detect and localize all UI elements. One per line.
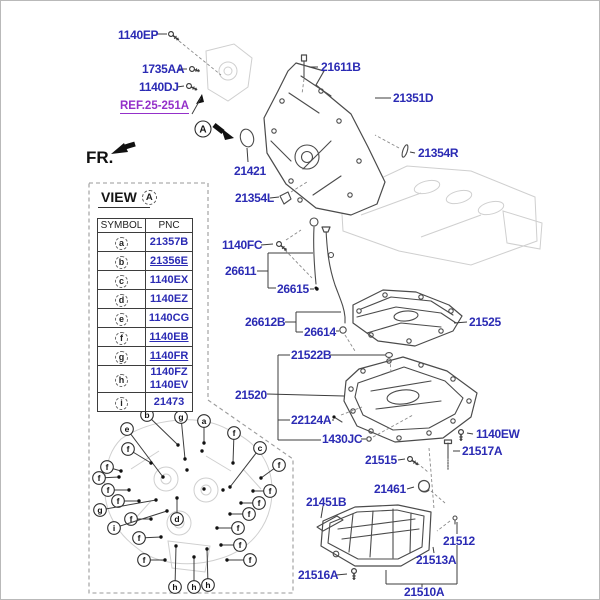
symbol-marker-letter: e (125, 424, 130, 434)
bolt-point-dot (251, 489, 254, 492)
bolt-point-dot (259, 476, 262, 479)
view-a-bottom-sketch (105, 420, 272, 564)
pnc-cell: 1140FR (146, 347, 193, 366)
stud-22124A (332, 415, 342, 422)
part-label-1140DJ[interactable]: 1140DJ (139, 80, 179, 94)
leader-line (267, 394, 344, 396)
timing-cover-21351D (264, 63, 385, 215)
symbol-marker-letter: f (98, 473, 101, 483)
bolt-point-dot (221, 488, 224, 491)
symbol-marker-letter: f (106, 462, 109, 472)
symbol-marker-letter: f (239, 540, 242, 550)
table-row: b21356E (98, 252, 193, 271)
o-ring-26614 (340, 327, 346, 333)
symbol-marker-letter: h (172, 582, 177, 592)
view-title-underline (98, 207, 150, 208)
bolt-icon (168, 31, 181, 42)
clip-26615 (315, 287, 318, 290)
symbol-marker-g: g (175, 411, 188, 461)
bolt-point-dot (149, 517, 152, 520)
diagram-canvas: A bgaeffcfffffffgfdfifffffhhh (1, 1, 600, 600)
symbol-marker-letter: a (202, 416, 207, 426)
symbol-circle-i: i (115, 397, 128, 410)
symbol-marker-f: f (133, 532, 163, 545)
part-label-21513A[interactable]: 21513A (416, 553, 456, 567)
symbol-circle-e: e (115, 313, 128, 326)
seal-21354R (401, 144, 409, 158)
bolt-point-dot (154, 498, 157, 501)
symbol-marker-letter: f (258, 498, 261, 508)
leader-line (410, 152, 415, 153)
bolt-point-dot (175, 496, 178, 499)
symbol-marker-letter: f (107, 485, 110, 495)
symbol-marker-f: f (225, 554, 256, 567)
dashed-line (286, 230, 301, 240)
fr-direction-label: FR. (86, 148, 113, 168)
gasket-21354L (280, 192, 291, 204)
bolt-point-dot (228, 512, 231, 515)
pnc-value-21356E[interactable]: 21356E (146, 255, 192, 268)
symbol-cell: h (98, 366, 146, 393)
part-label-21516A[interactable]: 21516A (298, 568, 338, 582)
part-label-21351D[interactable]: 21351D (393, 91, 433, 105)
part-label-1140EW[interactable]: 1140EW (476, 427, 520, 441)
part-label-21517A[interactable]: 21517A (462, 444, 502, 458)
symbol-marker-f: f (239, 497, 265, 510)
leader-line (192, 98, 201, 114)
bolt-point-dot (163, 558, 166, 561)
symbol-cell: g (98, 347, 146, 366)
symbol-circle-b: b (115, 256, 128, 269)
bolt-point-dot (202, 441, 205, 444)
bolt-point-dot (127, 488, 130, 491)
part-label-21510A[interactable]: 21510A (404, 585, 444, 599)
bolt-icon (352, 569, 357, 580)
part-label-21354L[interactable]: 21354L (235, 191, 274, 205)
leader-line (398, 459, 405, 460)
part-label-1140EP[interactable]: 1140EP (118, 28, 158, 42)
pnc-cell: 1140EB (146, 328, 193, 347)
bolt-21517A (445, 440, 452, 470)
ref-link[interactable]: REF.25-251A (120, 100, 189, 114)
symbol-marker-letter: f (248, 509, 251, 519)
symbol-marker-f: f (228, 508, 255, 521)
symbol-cell: i (98, 393, 146, 412)
symbol-marker-letter: f (127, 444, 130, 454)
detail-view-marker-letter: A (199, 125, 206, 136)
symbol-marker-letter: f (249, 555, 252, 565)
symbol-marker-letter: i (113, 523, 115, 533)
bolt-point-dot (137, 499, 140, 502)
bolt-point-dot (161, 475, 164, 478)
part-label-21611B[interactable]: 21611B (321, 60, 361, 74)
symbol-marker-f: f (228, 427, 241, 465)
pnc-cell: 21357B (146, 233, 193, 252)
symbol-cell: a (98, 233, 146, 252)
symbol-marker-letter: h (191, 582, 196, 592)
bolt-point-dot (192, 555, 195, 558)
pnc-value-1140CG[interactable]: 1140CG (146, 312, 192, 325)
pnc-cell: 21356E (146, 252, 193, 271)
bolt-point-dot (231, 461, 234, 464)
bolt-point-dot (239, 501, 242, 504)
symbol-marker-letter: d (174, 514, 179, 524)
symbol-marker-f: f (219, 539, 246, 552)
symbol-marker-h: h (188, 555, 201, 593)
symbol-marker-letter: g (178, 412, 183, 422)
fr-arrow-shaft (125, 144, 135, 147)
view-a-title: VIEW A (101, 189, 157, 205)
symbol-marker-f: f (251, 485, 276, 498)
screw-21512 (453, 516, 457, 524)
bolt-icon (459, 430, 464, 441)
symbol-circle-c: c (115, 275, 128, 288)
dashed-line (437, 521, 450, 531)
pnc-value-1140EB[interactable]: 1140EB (146, 331, 192, 344)
o-ring-21421 (238, 128, 255, 149)
symbol-cell: d (98, 290, 146, 309)
symbol-marker-letter: f (269, 486, 272, 496)
plug-21461 (418, 481, 429, 493)
pnc-value-21473[interactable]: 21473 (146, 396, 192, 409)
view-title-text: VIEW (101, 189, 137, 205)
bolt-point-dot (176, 443, 179, 446)
symbol-cell: f (98, 328, 146, 347)
dashed-line (417, 463, 428, 472)
table-row: c1140EX (98, 271, 193, 290)
part-label-21515[interactable]: 21515 (365, 453, 397, 467)
part-label-1140FC[interactable]: 1140FC (222, 238, 262, 252)
symbol-cell: c (98, 271, 146, 290)
bolt-point-dot (202, 487, 205, 490)
pnc-value-21357B[interactable]: 21357B (146, 236, 192, 249)
bolt-icon (189, 66, 200, 73)
dashed-line (429, 448, 434, 509)
bolt-point-dot (165, 509, 168, 512)
symbol-marker-f: f (101, 461, 123, 474)
pnc-cell: 1140CG (146, 309, 193, 328)
parts-diagram-page: A bgaeffcfffffffgfdfifffffhhh 1140EP1735… (0, 0, 600, 600)
symbol-circle-f: f (115, 332, 128, 345)
dashed-line (345, 335, 355, 351)
symbol-circle-d: d (115, 294, 128, 307)
table-row: i21473 (98, 393, 193, 412)
part-label-21512[interactable]: 21512 (443, 534, 475, 548)
symbol-circle-h: h (115, 374, 128, 387)
part-label-1430JC[interactable]: 1430JC (322, 432, 362, 446)
view-a-symbol-markers: bgaeffcfffffffgfdfifffffhhh (93, 409, 286, 594)
pnc-value-1140EZ[interactable]: 1140EZ (146, 293, 192, 306)
part-label-21421[interactable]: 21421 (234, 164, 266, 178)
pnc-column-header: PNC (146, 219, 193, 233)
bolt-icon (276, 241, 289, 253)
symbol-marker-a: a (198, 415, 211, 445)
bolt-point-dot (185, 468, 188, 471)
part-label-21354R[interactable]: 21354R (418, 146, 458, 160)
symbol-marker-letter: f (117, 496, 120, 506)
symbol-marker-letter: h (205, 580, 210, 590)
part-label-26611[interactable]: 26611 (225, 264, 256, 278)
detail-view-marker: A (195, 121, 211, 137)
bolt-point-dot (228, 485, 231, 488)
symbol-marker-letter: c (258, 443, 263, 453)
leader-line (467, 433, 473, 434)
bolt-point-dot (200, 449, 203, 452)
pnc-cell: 21473 (146, 393, 193, 412)
part-label-1735AA[interactable]: 1735AA (142, 62, 184, 76)
symbol-column-header: SYMBOL (98, 219, 146, 233)
pnc-cell: 1140EX (146, 271, 193, 290)
dipstick-assembly-26611 (310, 218, 345, 323)
bolt-icon (407, 456, 420, 467)
view-a-arrow-shaft (214, 125, 223, 132)
bolt-point-dot (225, 558, 228, 561)
part-label-26614[interactable]: 26614 (304, 325, 336, 339)
symbol-marker-f: f (215, 522, 244, 535)
o-ring-21522B (386, 353, 393, 358)
pnc-value-1140EX[interactable]: 1140EX (146, 274, 192, 287)
leader-line (407, 487, 414, 489)
part-label-21451B[interactable]: 21451B (306, 495, 346, 509)
symbol-cell: b (98, 252, 146, 271)
part-label-21522B[interactable]: 21522B (291, 348, 331, 362)
bolt-point-dot (205, 547, 208, 550)
bolt-point-dot (119, 469, 122, 472)
symbol-marker-letter: g (97, 505, 102, 515)
dashed-line (179, 41, 221, 75)
symbol-circle-g: g (115, 351, 128, 364)
part-label-21525[interactable]: 21525 (469, 315, 501, 329)
bolt-point-dot (219, 543, 222, 546)
symbol-pnc-table: SYMBOL PNC a21357Bb21356Ec1140EXd1140EZe… (97, 218, 193, 412)
part-label-22124A[interactable]: 22124A (291, 413, 331, 427)
symbol-marker-i: i (108, 509, 169, 534)
pnc-value-1140FZ[interactable]: 1140FZ (146, 366, 192, 379)
bracket-sketch (206, 44, 252, 101)
symbol-marker-letter: f (278, 460, 281, 470)
table-header-row: SYMBOL PNC (98, 219, 193, 233)
symbol-marker-f: f (138, 554, 167, 567)
symbol-marker-b: b (141, 409, 180, 447)
dashed-line (285, 250, 312, 278)
leader-line (247, 148, 248, 162)
symbol-cell: e (98, 309, 146, 328)
bolt-icon (186, 83, 198, 92)
symbol-marker-letter: f (138, 533, 141, 543)
table-row: d1140EZ (98, 290, 193, 309)
part-label-21520[interactable]: 21520 (235, 388, 267, 402)
bolt-point-dot (159, 535, 162, 538)
dipstick-handle-icon (310, 218, 318, 226)
symbol-marker-letter: f (233, 428, 236, 438)
bolt-point-dot (174, 544, 177, 547)
part-label-26615[interactable]: 26615 (277, 282, 309, 296)
dashed-line (375, 135, 399, 148)
pnc-cell: 1140EZ (146, 290, 193, 309)
pin-1430JC (367, 437, 371, 441)
symbol-circle-a: a (115, 237, 128, 250)
table-row: g1140FR (98, 347, 193, 366)
part-label-26612B[interactable]: 26612B (245, 315, 285, 329)
bolt-point-dot (215, 526, 218, 529)
symbol-marker-f: f (122, 443, 153, 465)
bolt-point-dot (183, 457, 186, 460)
view-title-symbol: A (142, 190, 157, 205)
pnc-value-1140EV[interactable]: 1140EV (146, 379, 192, 392)
pnc-value-1140FR[interactable]: 1140FR (146, 350, 192, 363)
pnc-cell: 1140FZ1140EV (146, 366, 193, 393)
part-label-21461[interactable]: 21461 (374, 482, 406, 496)
table-row: h1140FZ1140EV (98, 366, 193, 393)
bolt-point-dot (117, 475, 120, 478)
symbol-marker-letter: f (143, 555, 146, 565)
symbol-marker-f: f (259, 459, 285, 480)
bolt-point-dot (149, 461, 152, 464)
symbol-marker-letter: f (237, 523, 240, 533)
table-row: a21357B (98, 233, 193, 252)
table-row: f1140EB (98, 328, 193, 347)
table-row: e1140CG (98, 309, 193, 328)
symbol-marker-c: c (228, 442, 266, 489)
leader-line (261, 244, 273, 245)
